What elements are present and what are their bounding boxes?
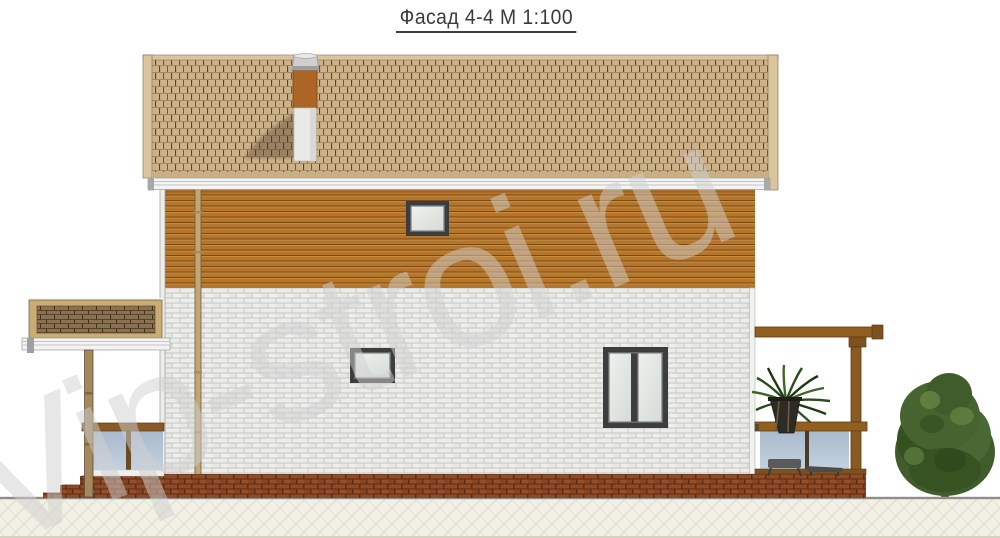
roof-ridge-band bbox=[143, 55, 778, 60]
chimney bbox=[292, 54, 319, 161]
chimney-upper-brick bbox=[293, 70, 317, 108]
roof-shingles bbox=[152, 59, 768, 172]
large-window-mullion bbox=[631, 354, 637, 422]
small-window-glass bbox=[356, 354, 390, 378]
large-window bbox=[603, 347, 668, 428]
rail-wall-bracket bbox=[755, 424, 759, 431]
step-bottom bbox=[43, 493, 62, 498]
terrace-railing-divider bbox=[805, 431, 809, 470]
attic-window-glass bbox=[412, 207, 444, 231]
porch-post bbox=[84, 350, 94, 497]
right-corner-trim bbox=[750, 288, 756, 474]
porch-railing-divider bbox=[126, 431, 131, 470]
large-window-glass-left bbox=[610, 354, 632, 422]
drawing-title: Фасад 4-4 М 1:100 bbox=[396, 6, 577, 33]
roof-gutter bbox=[148, 178, 770, 191]
porch-railing bbox=[82, 423, 164, 476]
porch-gutter-cap bbox=[27, 338, 34, 353]
attic-window bbox=[406, 201, 449, 236]
large-window-glass-right bbox=[639, 354, 662, 422]
main-roof bbox=[143, 54, 778, 191]
elevation-scene bbox=[0, 0, 1000, 538]
porch-handrail bbox=[82, 423, 164, 431]
ground-paving bbox=[0, 499, 1000, 538]
terrace-post bbox=[851, 347, 861, 474]
plinth bbox=[164, 474, 866, 498]
bargeboard-right bbox=[768, 55, 778, 190]
gutter-cap-right bbox=[764, 178, 770, 191]
terrace-bracket bbox=[849, 337, 866, 347]
gutter-cap-left bbox=[148, 178, 154, 191]
upper-wall-siding bbox=[164, 189, 755, 288]
porch-deck-edge bbox=[93, 470, 164, 476]
terrace-glass-right bbox=[809, 431, 849, 469]
terrace-beam bbox=[755, 327, 882, 337]
terrace-handrail bbox=[755, 422, 867, 431]
terrace-beam-end bbox=[872, 325, 883, 339]
roof-soffit bbox=[152, 172, 768, 178]
porch-roof-shingles bbox=[37, 306, 155, 333]
small-window bbox=[350, 348, 395, 383]
bargeboard-left bbox=[143, 55, 152, 178]
facade-drawing-sheet: Vip-stroi.ru Фасад 4-4 М 1:100 bbox=[0, 0, 1000, 538]
step-middle bbox=[60, 485, 82, 498]
